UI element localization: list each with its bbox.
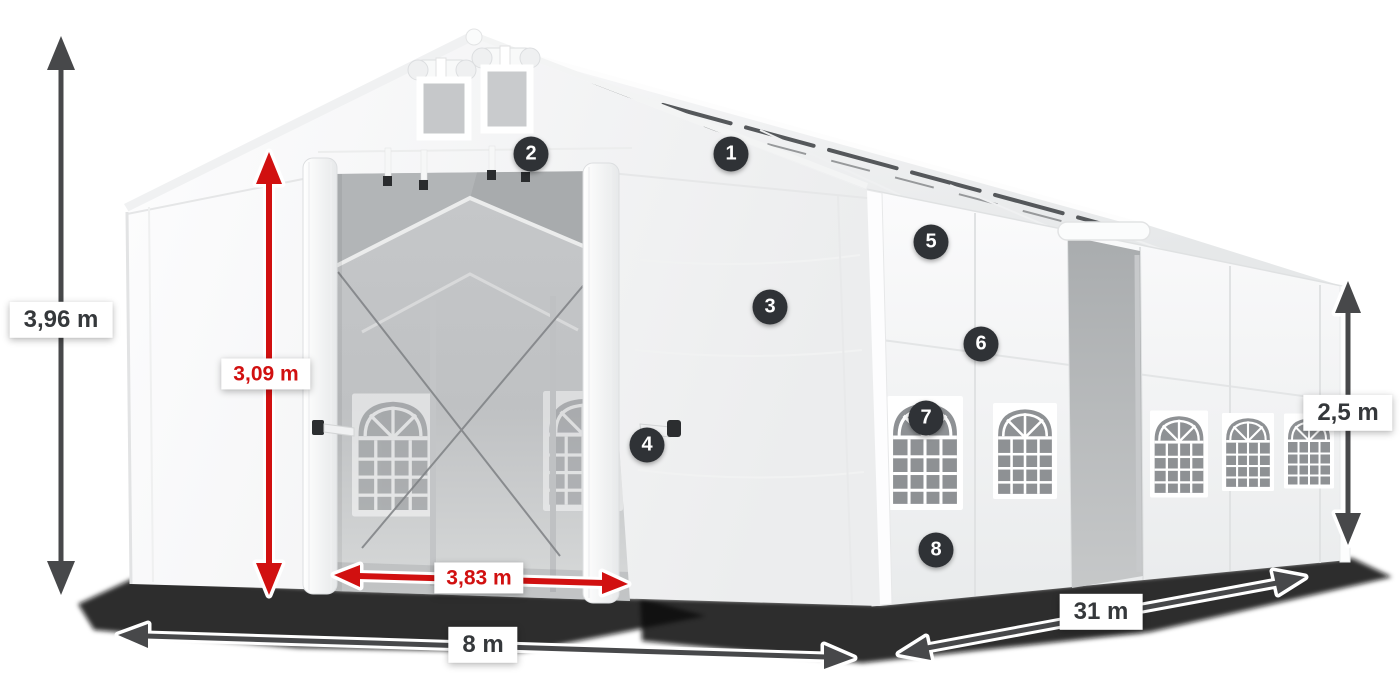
door-latch — [667, 420, 681, 437]
callout-badge-8: 8 — [919, 533, 954, 568]
interior-back-window — [352, 394, 434, 517]
dimension-label-length: 31 m — [1060, 594, 1143, 630]
dimension-label-entrance-width: 3,83 m — [434, 562, 523, 593]
vent-opening — [420, 80, 468, 137]
callout-badge-5: 5 — [914, 225, 949, 260]
dimension-label-entrance-height: 3,09 m — [221, 358, 310, 389]
callout-badge-6: 6 — [964, 327, 999, 362]
callout-badge-2: 2 — [514, 137, 549, 172]
callout-badge-3: 3 — [753, 290, 788, 325]
rolled-side-door — [1058, 222, 1150, 240]
tent-illustration — [0, 0, 1400, 700]
product-diagram: 3,96 m 3,09 m 3,83 m 8 m 31 m 2,5 m 1 2 … — [0, 0, 1400, 700]
dimension-label-gable-width: 8 m — [448, 627, 517, 663]
callout-badge-4: 4 — [630, 428, 665, 463]
callout-badge-1: 1 — [714, 137, 749, 172]
door-latch — [312, 420, 324, 435]
dimension-label-total-height: 3,96 m — [10, 302, 113, 338]
callout-badge-7: 7 — [909, 401, 944, 436]
dimension-label-side-height: 2,5 m — [1303, 395, 1392, 431]
vent-opening — [484, 68, 530, 130]
side-door-opening — [1058, 222, 1150, 588]
apex-cap — [466, 29, 482, 45]
